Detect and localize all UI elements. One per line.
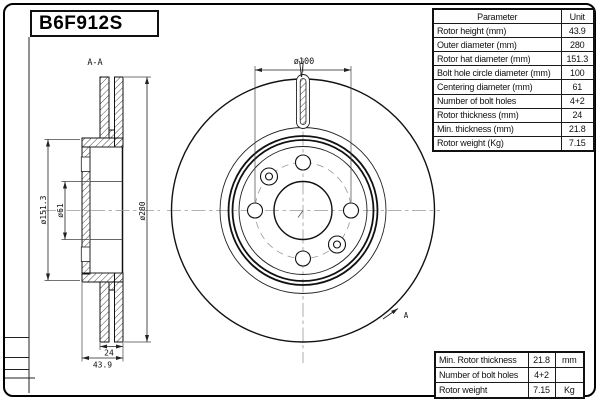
table-row: Rotor height (mm)43.9 — [433, 24, 594, 38]
bolt-hole-bottom — [296, 251, 311, 266]
summary-name-cell: Rotor weight — [435, 383, 528, 399]
param-value-cell: 7.15 — [561, 136, 594, 151]
param-name-cell: Outer diameter (mm) — [433, 38, 561, 52]
dim-bolt-circle-label: ø100 — [294, 57, 314, 67]
param-value-cell: 100 — [561, 66, 594, 80]
table-row: Outer diameter (mm)280 — [433, 38, 594, 52]
table-row: Number of bolt holes4+2 — [433, 94, 594, 108]
param-value-cell: 4+2 — [561, 94, 594, 108]
title-block-lines — [5, 37, 35, 393]
param-name-cell: Rotor height (mm) — [433, 24, 561, 38]
section-arrow-label: A — [404, 311, 409, 320]
param-name-cell: Rotor weight (Kg) — [433, 136, 561, 151]
summary-value-cell: 21.8 — [528, 352, 555, 368]
param-value-cell: 280 — [561, 38, 594, 52]
dim-centering-diameter-label: ø61 — [56, 203, 65, 218]
summary-unit-cell: Kg — [555, 383, 584, 399]
part-number: B6F912S — [39, 13, 123, 34]
summary-unit-cell — [555, 368, 584, 383]
pin-hole-lower-right — [329, 236, 346, 253]
pin-hole-upper-left — [261, 168, 278, 185]
spec-table: Parameter Unit Rotor height (mm)43.9 Out… — [432, 8, 595, 152]
bolt-hole-right — [344, 203, 359, 218]
table-row: Centering diameter (mm)61 — [433, 80, 594, 94]
table-row: Rotor weight (Kg)7.15 — [433, 136, 594, 151]
spec-header-unit: Unit — [561, 9, 594, 24]
center-mark — [298, 211, 303, 218]
summary-name-cell: Number of bolt holes — [435, 368, 528, 383]
param-value-cell: 21.8 — [561, 122, 594, 136]
param-name-cell: Bolt hole circle diameter (mm) — [433, 66, 561, 80]
section-view: A-A — [39, 58, 160, 370]
table-row: Rotor weight 7.15 Kg — [435, 383, 584, 399]
vent-slot-vane-hatched — [300, 79, 306, 125]
table-row: Rotor thickness (mm)24 — [433, 108, 594, 122]
param-value-cell: 24 — [561, 108, 594, 122]
param-value-cell: 43.9 — [561, 24, 594, 38]
param-name-cell: Rotor hat diameter (mm) — [433, 52, 561, 66]
drawing-sheet: ø100 A A-A — [0, 0, 600, 400]
param-name-cell: Centering diameter (mm) — [433, 80, 561, 94]
param-value-cell: 61 — [561, 80, 594, 94]
section-view-label: A-A — [87, 58, 102, 68]
front-view: ø100 A — [167, 57, 440, 363]
spec-header-parameter: Parameter — [433, 9, 561, 24]
param-name-cell: Rotor thickness (mm) — [433, 108, 561, 122]
part-number-box: B6F912S — [30, 10, 159, 37]
dim-thickness-label: 24 — [104, 349, 114, 358]
section-arrow: A — [383, 309, 409, 321]
table-row: Min. thickness (mm)21.8 — [433, 122, 594, 136]
table-row: Min. Rotor thickness 21.8 mm — [435, 352, 584, 368]
param-name-cell: Number of bolt holes — [433, 94, 561, 108]
dim-height-label: 43.9 — [93, 361, 112, 370]
summary-value-cell: 4+2 — [528, 368, 555, 383]
summary-table: Min. Rotor thickness 21.8 mm Number of b… — [434, 351, 585, 399]
bolt-hole-top — [296, 155, 311, 170]
bolt-hole-left — [248, 203, 263, 218]
summary-unit-cell: mm — [555, 352, 584, 368]
param-name-cell: Min. thickness (mm) — [433, 122, 561, 136]
param-value-cell: 151.3 — [561, 52, 594, 66]
summary-name-cell: Min. Rotor thickness — [435, 352, 528, 368]
table-row: Number of bolt holes 4+2 — [435, 368, 584, 383]
table-row: Bolt hole circle diameter (mm)100 — [433, 66, 594, 80]
section-hat-interior — [90, 147, 123, 273]
dim-outer-diameter-label: ø280 — [138, 201, 147, 220]
summary-value-cell: 7.15 — [528, 383, 555, 399]
dim-thickness: 24 — [100, 343, 123, 358]
dim-outer-diameter: ø280 — [124, 77, 151, 342]
table-row: Rotor hat diameter (mm)151.3 — [433, 52, 594, 66]
dim-hat-diameter-label: ø151.3 — [39, 195, 48, 224]
